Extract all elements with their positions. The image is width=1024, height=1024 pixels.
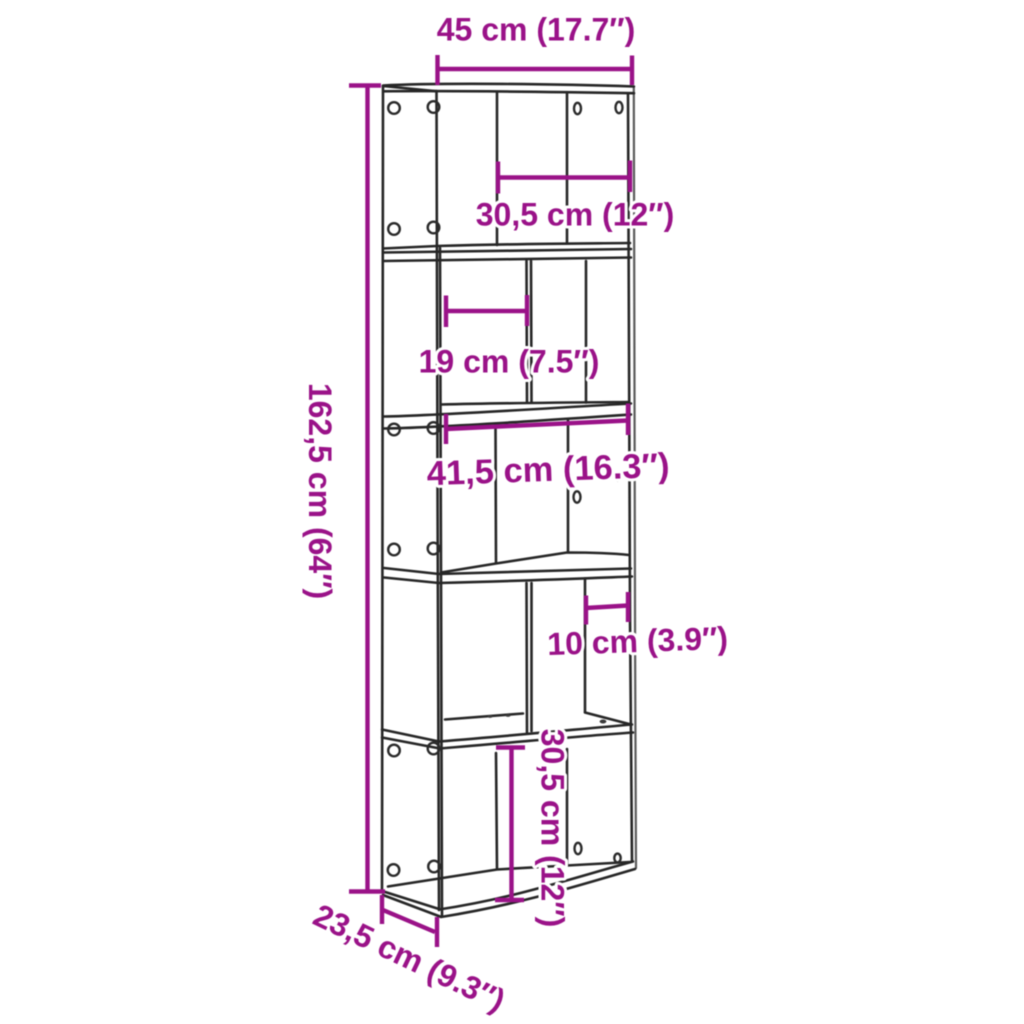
- svg-text:41,5 cm (16.3″): 41,5 cm (16.3″): [426, 447, 670, 493]
- svg-text:45 cm (17.7″): 45 cm (17.7″): [437, 12, 636, 48]
- svg-text:162,5 cm (64″): 162,5 cm (64″): [302, 383, 338, 599]
- svg-text:23,5 cm (9.3″): 23,5 cm (9.3″): [308, 897, 511, 1019]
- svg-text:30,5 cm (12″): 30,5 cm (12″): [476, 197, 675, 233]
- svg-text:19 cm (7.5″): 19 cm (7.5″): [419, 344, 600, 380]
- svg-text:10 cm (3.9″): 10 cm (3.9″): [547, 620, 729, 662]
- svg-text:30,5 cm (12″): 30,5 cm (12″): [535, 729, 571, 928]
